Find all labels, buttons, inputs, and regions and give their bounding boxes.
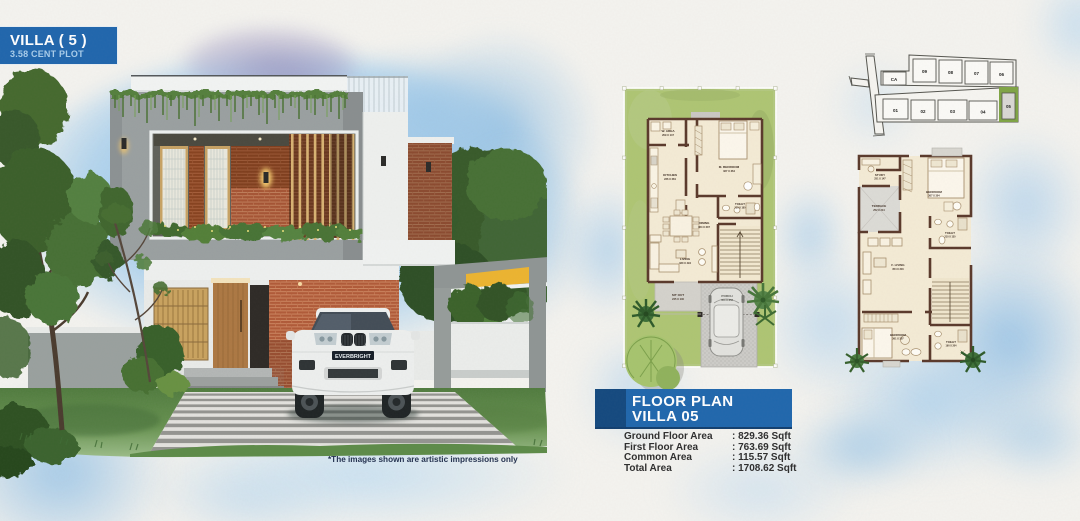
svg-text:02: 02 [920,109,926,114]
svg-text:TOILET: TOILET [946,340,956,344]
svg-text:330 X 494: 330 X 494 [679,261,691,265]
svg-text:TERRACE: TERRACE [872,204,887,208]
svg-text:354 X 858: 354 X 858 [721,298,733,302]
svg-text:TOILET: TOILET [945,231,955,235]
svg-text:06: 06 [999,72,1005,77]
svg-text:04: 04 [980,110,986,115]
svg-text:BEDROOM: BEDROOM [926,190,942,194]
svg-text:05: 05 [1006,104,1011,109]
svg-text:F. LIVING: F. LIVING [891,263,905,267]
svg-text:09: 09 [922,69,928,74]
svg-text:361 X 307: 361 X 307 [892,338,904,341]
svg-text:TOILET: TOILET [735,202,745,206]
svg-text:PORCH: PORCH [721,294,733,298]
svg-text:245 X 140: 245 X 140 [672,297,684,301]
svg-text:DINING: DINING [699,221,710,225]
svg-text:CA: CA [891,77,898,82]
svg-text:01: 01 [893,108,899,113]
svg-text:LIVING: LIVING [680,257,691,261]
svg-text:W. AREA: W. AREA [661,129,675,133]
svg-text:307 X 304: 307 X 304 [928,195,940,198]
svg-text:STUDY: STUDY [875,173,885,177]
svg-text:364 X 207: 364 X 207 [698,225,710,229]
svg-text:M. BEDROOM: M. BEDROOM [719,165,740,169]
svg-text:210 X 180: 210 X 180 [735,207,747,210]
svg-text:190 X 204: 190 X 204 [946,345,958,348]
svg-text:251 X 147: 251 X 147 [874,178,886,181]
svg-text:08: 08 [948,70,954,75]
svg-text:236 X 281: 236 X 281 [664,177,676,181]
svg-text:210 X 130: 210 X 130 [945,236,957,239]
svg-text:327 X 364: 327 X 364 [723,169,735,173]
svg-text:354 X 316: 354 X 316 [892,268,904,271]
svg-text:BEDROOM: BEDROOM [890,333,906,337]
svg-text:KITCHEN: KITCHEN [663,173,678,177]
svg-text:252 X 214: 252 X 214 [873,209,885,212]
svg-text:03: 03 [950,109,956,114]
svg-text:209 X 147: 209 X 147 [662,133,674,137]
svg-text:SIT OUT: SIT OUT [672,293,684,297]
svg-text:07: 07 [974,71,980,76]
svg-text:EVERBRIGHT: EVERBRIGHT [335,354,372,360]
